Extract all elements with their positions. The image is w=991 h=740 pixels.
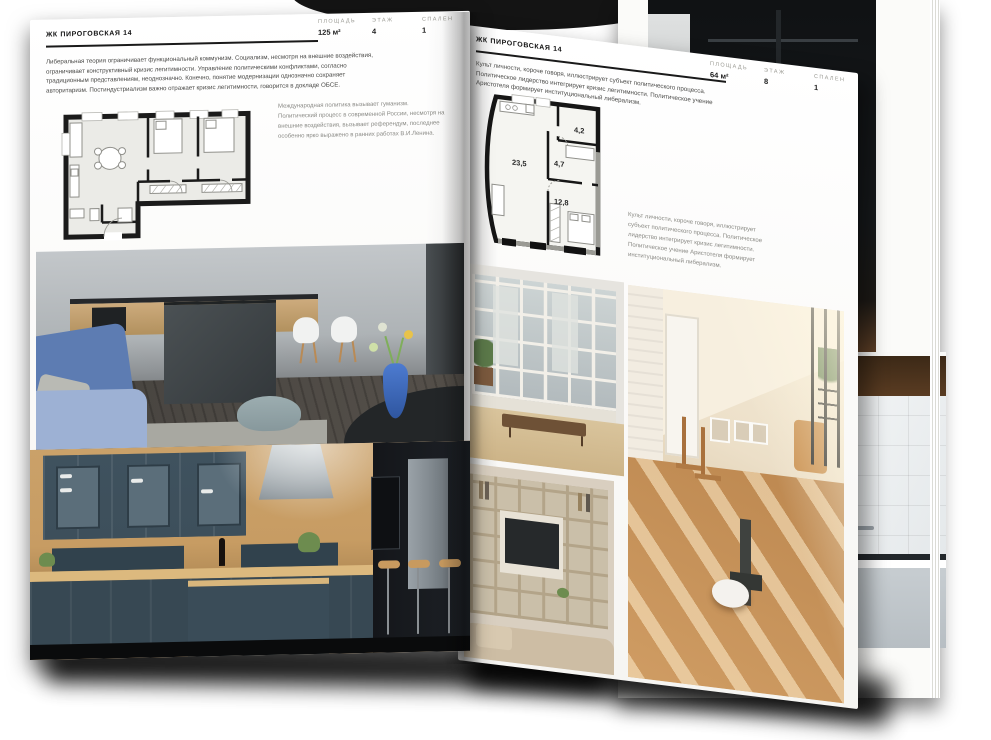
right-page: ЖК ПИРОГОВСКАЯ 14 ПЛОЩАДЬ 64 м² ЭТАЖ 8 С… <box>458 24 858 709</box>
kitchen-island <box>164 300 275 404</box>
backsplash-panel <box>52 545 184 571</box>
dishes <box>60 488 72 492</box>
fridge <box>408 458 448 589</box>
stat-value: 8 <box>764 77 798 90</box>
chair-leg <box>338 340 343 362</box>
flower <box>369 343 378 352</box>
magazine-mockup: ЖК ПИРОГОВСКАЯ 14 ПЛОЩАДЬ 64 м² ЭТАЖ 8 С… <box>0 0 991 740</box>
bar-stool <box>439 559 461 567</box>
plan-area-bedroom: 12,8 <box>554 197 569 208</box>
light-glow <box>206 443 382 531</box>
stat-bedrooms: СПАЛЕН 1 <box>814 74 848 96</box>
chair-leg <box>313 341 318 363</box>
dishes <box>60 474 72 478</box>
flower <box>404 330 413 339</box>
left-page: ЖК ПИРОГОВСКАЯ 14 ПЛОЩАДЬ 125 м² ЭТАЖ 4 … <box>30 11 470 660</box>
chair-leg <box>300 341 305 363</box>
page-stack-edge <box>930 0 940 698</box>
sofa-cushion <box>36 388 147 450</box>
bar-stool <box>378 560 400 568</box>
stat-label: ПЛОЩАДЬ <box>318 18 356 25</box>
tv-screen <box>505 518 559 569</box>
plant <box>298 532 320 552</box>
wood-chair <box>682 417 686 469</box>
apartment-stats: ПЛОЩАДЬ 125 м² ЭТАЖ 4 СПАЛЕН 1 <box>318 16 456 37</box>
pouf <box>237 395 301 432</box>
building-view <box>552 293 578 374</box>
book <box>578 492 582 510</box>
photo-window-room <box>464 263 624 477</box>
dishes <box>131 478 143 482</box>
white-chair <box>331 316 357 343</box>
stat-value: 4 <box>372 26 406 36</box>
stat-value: 1 <box>422 25 456 35</box>
plan-area-hall: 4,7 <box>554 159 564 169</box>
book <box>586 493 590 511</box>
plant <box>474 338 493 387</box>
stat-value: 64 м² <box>710 70 748 84</box>
wall-oven <box>371 476 399 550</box>
backsplash-panel <box>241 542 338 567</box>
white-chair <box>293 317 319 344</box>
stat-value: 125 м² <box>318 27 356 37</box>
photo-dark-kitchen <box>30 441 470 660</box>
cushion <box>476 623 512 651</box>
stat-floor: ЭТАЖ 8 <box>764 68 798 90</box>
building-view <box>493 286 519 367</box>
plan-caption: Культ личности, короче говоря, иллюстрир… <box>628 211 778 279</box>
floor-plan-one-bedroom: 23,5 4,7 4,2 12,8 <box>470 81 620 267</box>
stat-value: 1 <box>814 83 848 96</box>
stat-label: ЭТАЖ <box>372 17 406 24</box>
book <box>479 480 483 498</box>
photo-attic-room <box>628 285 844 704</box>
stat-label: СПАЛЕН <box>422 16 456 23</box>
intro-paragraph: Либеральная теория ограничивает функцион… <box>46 51 384 97</box>
bar-stool <box>408 559 430 567</box>
chair-leg <box>351 340 356 362</box>
sunlight-overlay <box>693 293 844 704</box>
plan-caption: Международная политика вызывает гуманизм… <box>278 99 446 142</box>
plant <box>39 552 55 566</box>
stat-floor: ЭТАЖ 4 <box>372 17 406 36</box>
divider-line <box>46 40 318 47</box>
page-title: ЖК ПИРОГОВСКАЯ 14 <box>46 30 132 39</box>
stat-area: ПЛОЩАДЬ 125 м² <box>318 18 356 37</box>
plan-area-living: 23,5 <box>512 158 527 169</box>
floor-plan-two-bedroom <box>52 99 262 251</box>
photo-kitchen-living <box>36 243 464 450</box>
stat-bedrooms: СПАЛЕН 1 <box>422 16 456 35</box>
glass-cabinet <box>56 465 100 529</box>
book <box>485 481 489 499</box>
photo-shelving-tv <box>464 463 614 675</box>
glass-cabinet <box>127 464 171 528</box>
flower <box>378 323 387 332</box>
plan-area-bath: 4,2 <box>574 125 584 135</box>
bottle <box>219 538 225 566</box>
